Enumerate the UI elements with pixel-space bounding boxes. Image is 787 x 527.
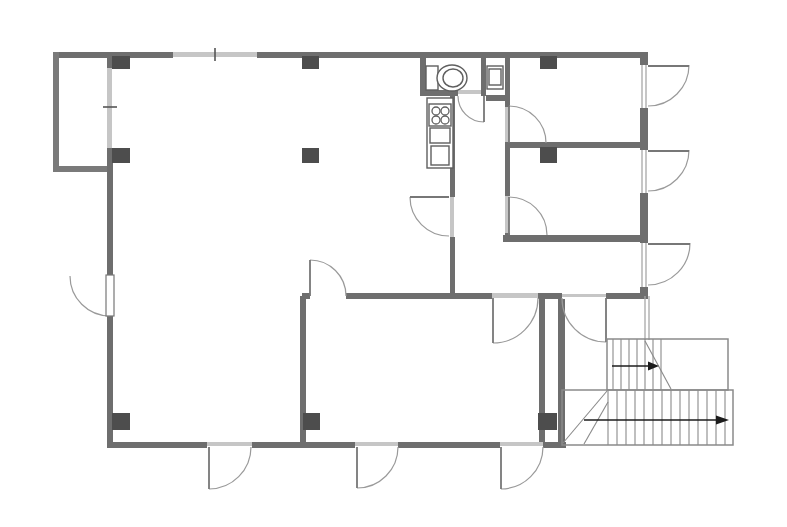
bay-wall-left: [53, 52, 59, 172]
fixture-layer: [426, 65, 503, 168]
bottom-exterior-door-c-swing-arc: [501, 447, 543, 489]
left-exterior-door-swing-arc: [70, 276, 110, 316]
corridor-east-wall-middle: [505, 143, 510, 196]
upper-right-room-door-swing-arc: [509, 106, 546, 143]
toilet-stub-wall: [486, 95, 510, 101]
floor-plan-drawing: [0, 0, 787, 527]
left-window-band: [107, 68, 112, 148]
left-exterior-door-leaf: [106, 275, 114, 316]
structural-column: [538, 413, 557, 430]
door-header-corridor: [450, 197, 454, 237]
stair-winder-line: [584, 402, 608, 444]
structural-column: [540, 56, 557, 69]
door-layer: [70, 65, 690, 489]
exterior-wall-right-1: [640, 52, 648, 65]
door-header-bottom-b: [355, 442, 398, 446]
toilet-bowl-inner: [443, 69, 463, 87]
exterior-wall-left-middle: [107, 148, 113, 275]
bottom-exterior-door-a-swing-arc: [209, 447, 251, 489]
door-header-bm-right: [492, 293, 538, 298]
toilet-door-swing-arc: [458, 96, 484, 122]
door-header-bottom-c: [500, 442, 543, 446]
corridor-door-swing-arc: [410, 197, 449, 236]
structural-column: [302, 56, 319, 69]
stove-burner: [441, 116, 449, 124]
structural-column: [303, 413, 320, 430]
hall-door-swing-arc: [562, 298, 606, 342]
bottom-exterior-door-b-swing-arc: [357, 447, 398, 488]
right-exterior-door-3-swing-arc: [648, 243, 690, 285]
kitchen-cabinet: [431, 146, 449, 165]
right-exterior-door-2-swing-arc: [648, 150, 689, 191]
stair-winder-line: [563, 391, 607, 443]
lower-right-room-bottom-wall: [503, 235, 648, 242]
exterior-wall-bottom-3: [398, 442, 500, 448]
stove-burner: [432, 116, 440, 124]
middle-wall-seg-3: [538, 293, 562, 299]
column-layer: [112, 56, 557, 430]
window-and-door-header-layer: [107, 52, 606, 446]
exterior-wall-bottom-2: [252, 442, 355, 448]
structural-column: [540, 147, 557, 163]
corridor-west-wall-lower: [450, 237, 455, 296]
middle-wall-seg-4: [606, 293, 648, 299]
floor-plan-canvas: [0, 0, 787, 527]
middle-wall-seg-2: [346, 293, 492, 299]
lower-right-room-door-swing-arc: [509, 197, 547, 235]
exterior-wall-bottom-1: [107, 442, 207, 448]
structural-column: [112, 56, 130, 69]
door-header-hall: [562, 294, 606, 297]
bay-wall-bottom: [53, 166, 110, 172]
bottom-middle-room-north-door-swing-arc: [310, 260, 346, 296]
right-exterior-door-1-swing-arc: [648, 65, 689, 106]
wall-layer: [53, 52, 648, 448]
bottom-middle-room-east-door-swing-arc: [493, 298, 538, 343]
structural-column: [302, 148, 319, 163]
structural-column: [112, 413, 130, 430]
stair-direction-arrow-lower-head: [716, 416, 729, 425]
stair-layer: [562, 339, 733, 445]
structural-column: [112, 148, 130, 163]
toilet-tank: [426, 66, 438, 90]
toilet-partition-wall: [481, 58, 486, 96]
door-header-bottom-a: [207, 442, 252, 446]
hand-sink-inner: [489, 69, 501, 85]
door-header-toilet: [458, 90, 481, 94]
stove-burner: [441, 107, 449, 115]
right-rooms-divider-wall: [505, 142, 648, 148]
kitchen-sink: [430, 128, 450, 143]
stove-burner: [432, 107, 440, 115]
